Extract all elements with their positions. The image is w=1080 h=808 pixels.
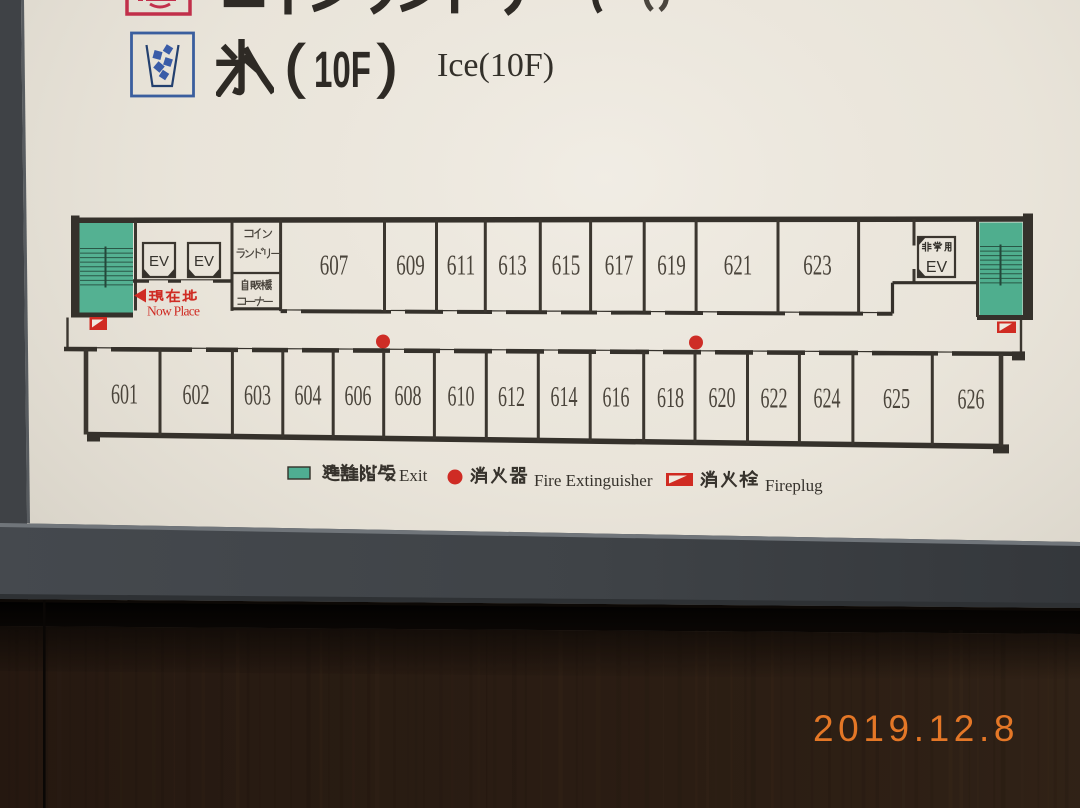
svg-text:Fireplug: Fireplug: [765, 476, 823, 495]
svg-text:615: 615: [552, 251, 581, 282]
svg-text:612: 612: [498, 382, 525, 413]
svg-text:607: 607: [320, 251, 349, 282]
svg-text:604: 604: [295, 381, 322, 412]
svg-text:EV: EV: [194, 253, 214, 270]
svg-text:603: 603: [244, 380, 271, 411]
svg-text:Exit: Exit: [399, 466, 428, 485]
svg-text:Ice(10F): Ice(10F): [437, 47, 554, 84]
svg-text:622: 622: [761, 383, 788, 414]
svg-text:619: 619: [657, 251, 686, 282]
svg-text:618: 618: [657, 383, 684, 414]
svg-text:602: 602: [183, 380, 210, 411]
svg-text:): ): [378, 34, 397, 99]
svg-text:Fire Extinguisher: Fire Extinguisher: [534, 471, 653, 490]
svg-text:2019.12.8: 2019.12.8: [813, 708, 1019, 749]
svg-text:611: 611: [447, 251, 476, 282]
svg-text:606: 606: [345, 381, 372, 412]
svg-text:623: 623: [803, 251, 832, 282]
svg-text:10F: 10F: [314, 41, 371, 98]
svg-text:620: 620: [709, 383, 736, 414]
svg-text:617: 617: [605, 251, 634, 282]
svg-text:621: 621: [724, 251, 753, 282]
svg-text:EV: EV: [149, 253, 169, 270]
svg-text:EV: EV: [926, 259, 948, 276]
svg-text:601: 601: [111, 380, 138, 411]
svg-text:625: 625: [883, 384, 910, 415]
svg-text:609: 609: [396, 251, 425, 282]
svg-text:614: 614: [551, 382, 578, 413]
svg-text:626: 626: [958, 385, 985, 416]
svg-text:608: 608: [395, 381, 422, 412]
svg-text:624: 624: [814, 384, 841, 415]
svg-text:Now Place: Now Place: [147, 304, 200, 319]
svg-text:(: (: [285, 34, 304, 99]
svg-text:610: 610: [448, 382, 475, 413]
svg-text:616: 616: [603, 383, 630, 414]
svg-text:613: 613: [498, 251, 527, 282]
